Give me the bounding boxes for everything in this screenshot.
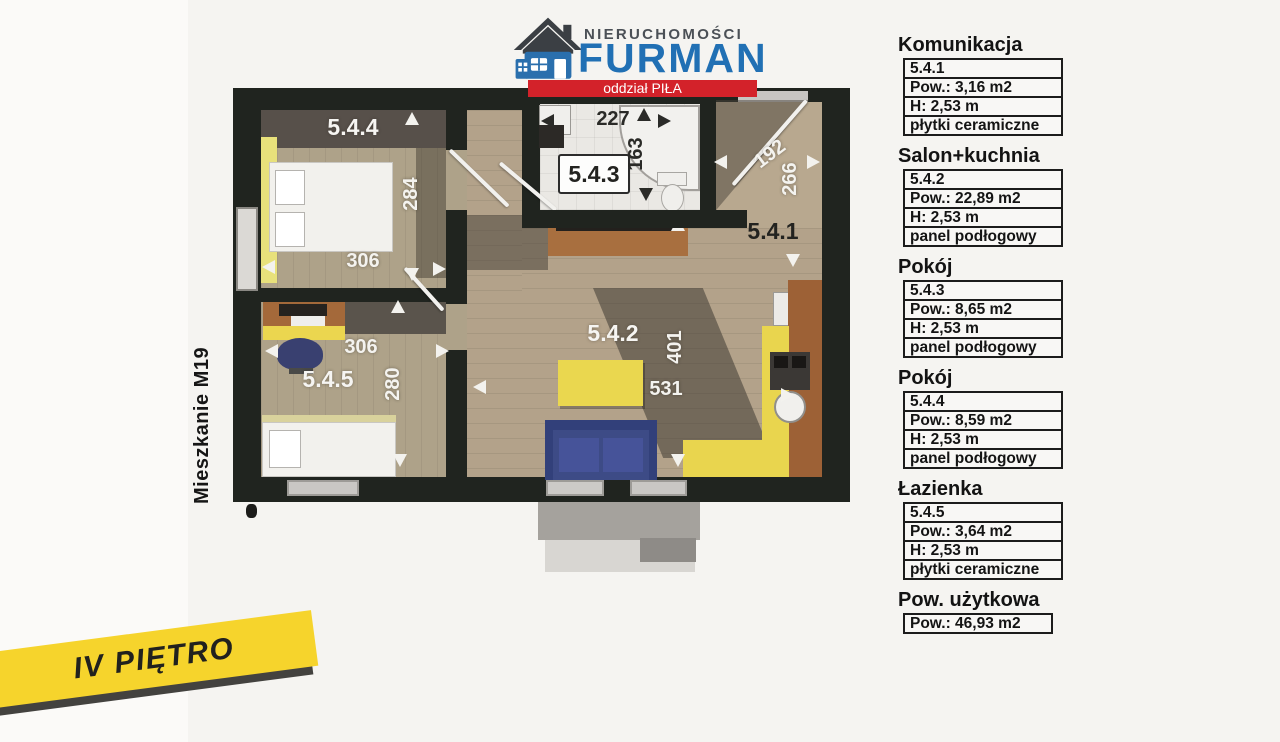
legend-section: Komunikacja 5.4.1 Pow.: 3,16 m2 H: 2,53 … [898, 34, 1073, 136]
balcony-door [546, 480, 604, 496]
legend-row: Pow.: 46,93 m2 [903, 613, 1053, 634]
legend-section: Łazienka 5.4.5 Pow.: 3,64 m2 H: 2,53 m p… [898, 478, 1073, 580]
legend-row: H: 2,53 m [903, 207, 1063, 228]
dimension-arrow [405, 268, 419, 281]
legend-row: H: 2,53 m [903, 96, 1063, 117]
legend-row: panel podłogowy [903, 448, 1063, 469]
agency-logo: NIERUCHOMOŚCI FURMAN oddział PIŁA [512, 12, 762, 104]
room-label: 5.4.5 [288, 366, 368, 393]
dimension-arrow [541, 114, 554, 128]
dimension-arrow [391, 300, 405, 313]
dimension-arrow [637, 108, 651, 121]
legend-section-title: Salon+kuchnia [898, 145, 1073, 168]
scanned-floor-plan-page: { "logo": { "brand_top": "NIERUCHOMOŚCI"… [0, 0, 1280, 742]
dimension-arrow [671, 454, 685, 467]
window-bottom-salon [630, 480, 687, 496]
dimension-arrow [393, 454, 407, 467]
balcony-upper [538, 502, 700, 540]
dimension-arrow [473, 380, 486, 394]
legend-row: 5.4.4 [903, 391, 1063, 412]
floor-plan: 5.4.3 5.4.4 5.4.1 5.4.2 5.4.5 284 306 22… [233, 88, 850, 502]
dimension-arrow [433, 262, 446, 276]
dimension-label: 531 [633, 378, 699, 400]
dimension-arrow [714, 155, 727, 169]
legend-row: 5.4.3 [903, 280, 1063, 301]
kitchen-counter-bottom [683, 440, 789, 477]
legend-row: Pow.: 3,16 m2 [903, 77, 1063, 98]
desk-paper [291, 316, 325, 326]
legend-section-title: Pokój [898, 256, 1073, 279]
legend-row: 5.4.5 [903, 502, 1063, 523]
window-bottom-545 [287, 480, 359, 496]
sofa-cushion [603, 438, 643, 472]
room-label: 5.4.4 [293, 114, 413, 141]
legend-section: Pokój 5.4.4 Pow.: 8,59 m2 H: 2,53 m pane… [898, 367, 1073, 469]
legend-panel: Komunikacja 5.4.1 Pow.: 3,16 m2 H: 2,53 … [898, 34, 1073, 643]
dimension-label: 401 [664, 317, 686, 377]
wall-stub [522, 210, 747, 228]
stove-burner [774, 356, 788, 368]
pillow [275, 212, 305, 247]
branch-banner: oddział PIŁA [528, 80, 757, 97]
wall-dot [246, 504, 257, 518]
dimension-arrow [781, 388, 794, 402]
legend-row: Pow.: 8,65 m2 [903, 299, 1063, 320]
door-opening-545 [446, 304, 467, 350]
dimension-arrow [405, 112, 419, 125]
sofa-cushion [559, 438, 599, 472]
legend-row: 5.4.1 [903, 58, 1063, 79]
dimension-arrow [265, 344, 278, 358]
legend-section: Salon+kuchnia 5.4.2 Pow.: 22,89 m2 H: 2,… [898, 145, 1073, 247]
legend-row: H: 2,53 m [903, 429, 1063, 450]
dimension-arrow [786, 254, 800, 267]
dimension-label: 306 [328, 250, 398, 272]
brand-name-text: FURMAN [578, 38, 768, 79]
balcony-step [640, 538, 696, 562]
legend-section-title: Pokój [898, 367, 1073, 390]
toilet-bowl [661, 184, 684, 212]
stove-burner [792, 356, 806, 368]
legend-section: Pow. użytkowa Pow.: 46,93 m2 [898, 589, 1073, 634]
legend-row: H: 2,53 m [903, 540, 1063, 561]
pillow [275, 170, 305, 205]
apartment-label: Mieszkanie M19 [191, 334, 223, 516]
dimension-arrow [807, 155, 820, 169]
dimension-arrow [436, 344, 449, 358]
floor-banner-label: IV PIĘTRO [72, 632, 237, 687]
bath-cabinet [539, 125, 564, 148]
dimension-arrow [658, 114, 671, 128]
legend-row: panel podłogowy [903, 226, 1063, 247]
legend-section: Pokój 5.4.3 Pow.: 8,65 m2 H: 2,53 m pane… [898, 256, 1073, 358]
dimension-arrow [639, 188, 653, 201]
coffee-table [558, 360, 643, 406]
desk-monitor [279, 304, 327, 316]
dimension-arrow [262, 260, 275, 274]
dimension-label: 284 [400, 166, 422, 222]
legend-row: płytki ceramiczne [903, 559, 1063, 580]
pillow [269, 430, 301, 468]
legend-row: 5.4.2 [903, 169, 1063, 190]
legend-row: H: 2,53 m [903, 318, 1063, 339]
legend-section-title: Komunikacja [898, 34, 1073, 57]
dimension-label: 266 [779, 149, 801, 209]
room-label: 5.4.2 [573, 320, 653, 347]
dimension-label: 163 [625, 126, 647, 182]
legend-row: Pow.: 22,89 m2 [903, 188, 1063, 209]
legend-row: Pow.: 3,64 m2 [903, 521, 1063, 542]
room-label-box-543: 5.4.3 [558, 154, 630, 194]
legend-section-title: Łazienka [898, 478, 1073, 501]
window-left [236, 207, 258, 291]
room-label: 5.4.3 [568, 161, 619, 188]
room-label: 5.4.1 [738, 218, 808, 245]
legend-row: panel podłogowy [903, 337, 1063, 358]
house-icon [512, 14, 584, 86]
legend-row: Pow.: 8,59 m2 [903, 410, 1063, 431]
dimension-label: 280 [382, 354, 404, 414]
legend-section-title: Pow. użytkowa [898, 589, 1073, 612]
bed-545-head [262, 415, 396, 422]
legend-row: płytki ceramiczne [903, 115, 1063, 136]
